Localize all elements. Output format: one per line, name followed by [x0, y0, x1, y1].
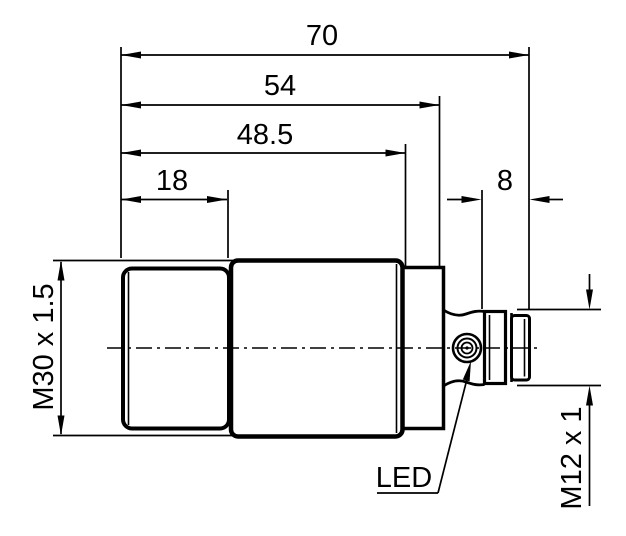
drawing-canvas: 70 54 48.5 18 8 M30	[0, 0, 626, 531]
dimension-text-54: 54	[264, 70, 296, 102]
dimension-text-8: 8	[497, 165, 513, 197]
led-center-dot	[465, 346, 468, 349]
sensor-dimension-drawing: 70 54 48.5 18 8 M30	[0, 0, 626, 531]
led-indicator	[453, 334, 481, 362]
dimension-text-m12: M12 x 1	[556, 406, 588, 509]
dimension-text-70: 70	[306, 20, 338, 52]
dimension-text-18: 18	[156, 165, 188, 197]
dimension-text-48-5: 48.5	[237, 119, 293, 151]
led-label: LED	[376, 462, 432, 494]
drawing-background	[0, 0, 626, 531]
dimension-text-m30: M30 x 1.5	[28, 283, 60, 410]
